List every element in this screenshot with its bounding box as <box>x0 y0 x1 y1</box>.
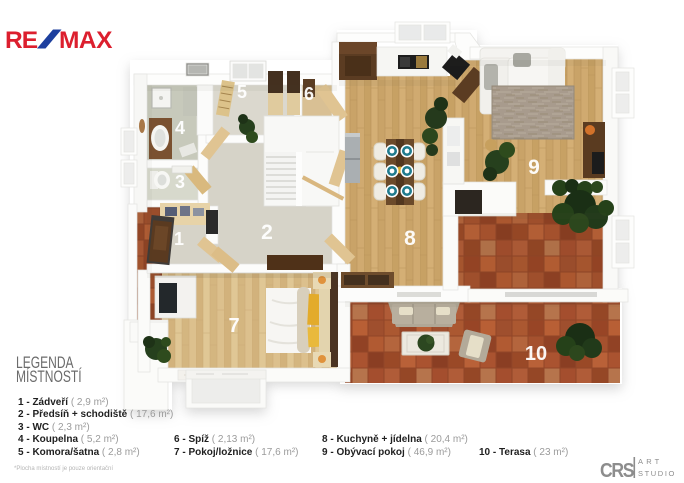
svg-text:4: 4 <box>175 118 185 138</box>
svg-text:7: 7 <box>228 315 239 337</box>
svg-text:9: 9 <box>528 156 540 179</box>
svg-text:STUDIO: STUDIO <box>638 469 676 478</box>
svg-text:RE: RE <box>5 27 38 54</box>
svg-text:2: 2 <box>261 221 273 244</box>
svg-text:MAX: MAX <box>59 27 113 54</box>
svg-text:ART: ART <box>638 457 662 466</box>
svg-text:8: 8 <box>404 227 416 250</box>
svg-text:10: 10 <box>525 343 547 365</box>
svg-text:CRS: CRS <box>600 459 634 481</box>
svg-text:5: 5 <box>237 82 247 102</box>
svg-text:1: 1 <box>174 229 184 249</box>
svg-text:3: 3 <box>175 172 185 192</box>
svg-text:6: 6 <box>304 84 314 104</box>
